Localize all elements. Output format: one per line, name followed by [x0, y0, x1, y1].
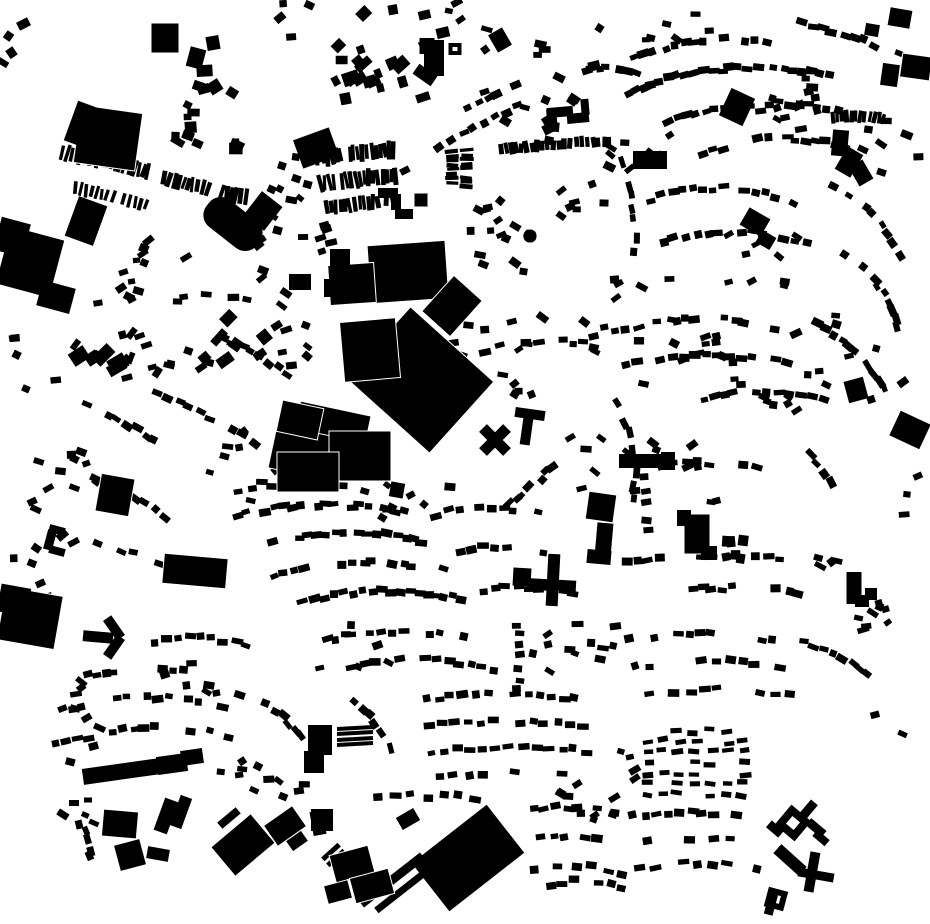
figure-ground-map	[0, 0, 930, 924]
map-viewport	[0, 0, 930, 924]
